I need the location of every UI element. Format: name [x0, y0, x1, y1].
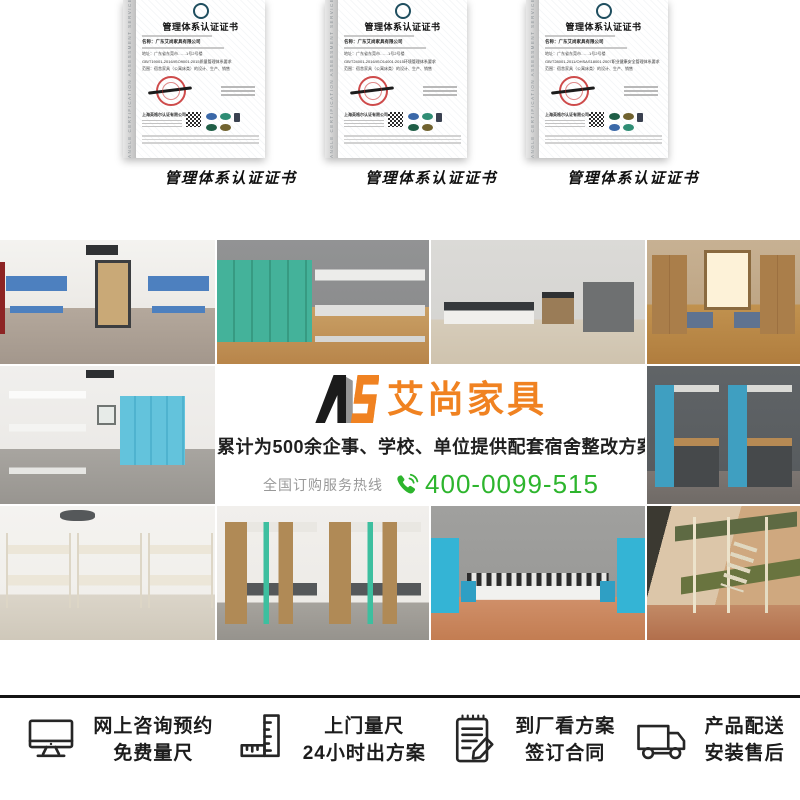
feature-line2: 24小时出方案	[303, 740, 426, 767]
certificate-address: 地址：广东省东莞市……1号2号楼	[545, 51, 662, 57]
brand-name: 艾尚家具	[387, 381, 547, 418]
photo-wood-dorm-wardrobes	[647, 240, 800, 364]
hotline-number[interactable]: 400-0099-515	[425, 469, 599, 500]
accreditation-badges	[609, 113, 644, 131]
certificate-scope: 范围：宿舍家具（公寓床类）的设计、生产、销售	[142, 66, 259, 72]
certificate-2: ANGLE CERTIFICATION ASSESSMENT SERVICES …	[325, 0, 537, 188]
certificate-title: 管理体系认证证书	[142, 20, 259, 33]
accreditation-badges	[206, 113, 241, 131]
certificate-1: ANGLE CERTIFICATION ASSESSMENT SERVICES …	[123, 0, 338, 188]
project-photo-collage: 艾尚家具 累计为500余企事、学校、单位提供配套宿舍整改方案 全国订购服务热线 …	[0, 240, 800, 640]
section-divider	[0, 695, 800, 698]
photo-twin-beds-blue-lockers	[431, 506, 645, 640]
red-seal-icon	[559, 76, 589, 106]
fine-print-lines	[545, 135, 662, 144]
photo-single-bed-cabinet-room	[431, 240, 645, 364]
ruler-icon	[233, 712, 289, 768]
feature-line1: 产品配送	[705, 713, 785, 740]
certificate-standard: GB/T19001-2016/ISO9001:2015质量管理体系要求	[142, 59, 259, 64]
certificate-caption: 管理体系认证证书	[325, 167, 537, 188]
redacted-text-line	[142, 47, 224, 49]
banner-subtitle: 累计为500余企事、学校、单位提供配套宿舍整改方案	[217, 433, 645, 459]
brand-logo: 艾尚家具	[217, 374, 645, 424]
issuer-emblem-icon	[596, 3, 612, 19]
certificate-scope: 范围：宿舍家具（公寓床类）的设计、生产、销售	[545, 66, 662, 72]
issuer-emblem-icon	[395, 3, 411, 19]
feature-line1: 到厂看方案	[515, 713, 615, 740]
feature-onsite-measure: 上门量尺 24小时出方案	[233, 712, 426, 768]
feature-line1: 网上咨询预约	[93, 713, 213, 740]
certificate-image: ANGLE CERTIFICATION ASSESSMENT SERVICES …	[526, 0, 668, 158]
certificate-address: 地址：广东省东莞市……1号2号楼	[344, 51, 461, 57]
issuer-emblem-icon	[193, 3, 209, 19]
certificate-title: 管理体系认证证书	[344, 20, 461, 33]
brand-banner: 艾尚家具 累计为500余企事、学校、单位提供配套宿舍整改方案 全国订购服务热线 …	[217, 366, 645, 504]
as-logo-mark-icon	[315, 375, 379, 423]
redacted-text-line	[142, 35, 212, 37]
photo-loft-desk-units	[217, 506, 429, 640]
photo-triple-bunkbeds-white	[0, 506, 215, 640]
certificate-caption: 管理体系认证证书	[123, 167, 338, 188]
page: ANGLE CERTIFICATION ASSESSMENT SERVICES …	[0, 0, 800, 800]
qr-code-icon	[186, 112, 201, 127]
photo-loft-beds-desks-dark	[647, 366, 800, 504]
certificate-dates	[423, 83, 457, 98]
certificate-issuer: 上海英格尔认证有限公司	[344, 112, 384, 129]
photo-bunkbed-blue-wardrobe	[0, 366, 215, 504]
red-seal-icon	[156, 76, 186, 106]
certificate-scope: 范围：宿舍家具（公寓床类）的设计、生产、销售	[344, 66, 461, 72]
certificate-3: ANGLE CERTIFICATION ASSESSMENT SERVICES …	[526, 0, 740, 188]
redacted-text-line	[545, 47, 627, 49]
redacted-text-line	[344, 47, 426, 49]
certificate-image: ANGLE CERTIFICATION ASSESSMENT SERVICES …	[325, 0, 467, 158]
monitor-icon	[23, 712, 79, 768]
photo-green-lockers-bunkbed	[217, 240, 429, 364]
feature-line1: 上门量尺	[303, 713, 426, 740]
certificate-dates	[624, 83, 658, 98]
feature-sign-contract: 到厂看方案 签订合同	[445, 712, 615, 768]
fine-print-lines	[142, 135, 259, 144]
certificate-standard: GB/T24001-2016/ISO14001:2015环境管理体系要求	[344, 59, 461, 64]
qr-code-icon	[388, 112, 403, 127]
feature-line2: 签订合同	[515, 740, 615, 767]
certificate-issuer: 上海英格尔认证有限公司	[142, 112, 182, 129]
contract-icon	[445, 712, 501, 768]
certificate-issuer: 上海英格尔认证有限公司	[545, 112, 585, 129]
hotline-row: 全国订购服务热线 400-0099-515	[217, 469, 645, 500]
accreditation-badges	[408, 113, 443, 131]
qr-code-icon	[589, 112, 604, 127]
photo-green-metal-bunks	[647, 506, 800, 640]
red-seal-icon	[358, 76, 388, 106]
certificate-watermark: ANGLE CERTIFICATION ASSESSMENT SERVICES	[526, 0, 539, 158]
fine-print-lines	[344, 135, 461, 144]
certificate-title: 管理体系认证证书	[545, 20, 662, 33]
truck-icon	[635, 712, 691, 768]
feature-line2: 免费量尺	[93, 740, 213, 767]
certificate-company: 名称：广东艾尚家具有限公司	[142, 39, 259, 45]
phone-icon	[395, 473, 419, 497]
certificate-watermark: ANGLE CERTIFICATION ASSESSMENT SERVICES	[325, 0, 338, 158]
certificate-company: 名称：广东艾尚家具有限公司	[344, 39, 461, 45]
feature-delivery-install: 产品配送 安装售后	[635, 712, 785, 768]
certificate-standard: GB/T28001-2011/OHSAS18001:2007职业健康安全管理体系…	[545, 59, 662, 64]
feature-line2: 安装售后	[705, 740, 785, 767]
photo-dorm-blue-bunkbeds	[0, 240, 215, 364]
hotline-label: 全国订购服务热线	[263, 475, 383, 495]
service-features: 网上咨询预约 免费量尺 上门量尺 24小时出方案	[0, 700, 800, 780]
certificate-company: 名称：广东艾尚家具有限公司	[545, 39, 662, 45]
certificate-address: 地址：广东省东莞市……1号2号楼	[142, 51, 259, 57]
redacted-text-line	[344, 35, 414, 37]
certificate-image: ANGLE CERTIFICATION ASSESSMENT SERVICES …	[123, 0, 265, 158]
certificate-dates	[221, 83, 255, 98]
feature-online-consult: 网上咨询预约 免费量尺	[23, 712, 213, 768]
certificates-section: ANGLE CERTIFICATION ASSESSMENT SERVICES …	[0, 0, 800, 235]
redacted-text-line	[545, 35, 615, 37]
certificate-caption: 管理体系认证证书	[526, 167, 740, 188]
certificate-watermark: ANGLE CERTIFICATION ASSESSMENT SERVICES	[123, 0, 136, 158]
